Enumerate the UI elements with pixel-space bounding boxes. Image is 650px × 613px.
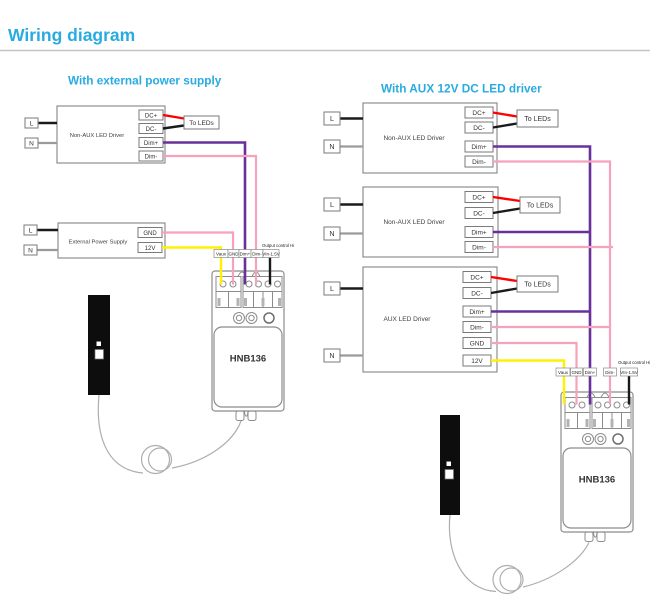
terminal-l-label: L (330, 284, 334, 293)
terminal-dc-plus-label: DC+ (145, 113, 158, 119)
sensor-cord (172, 421, 241, 468)
sensor-cord (449, 515, 496, 592)
header: Wiring diagram (0, 25, 650, 51)
right-aux-driver: AUX LED Driver L N DC+ DC- Dim+ Dim- GND… (324, 267, 497, 372)
wiring-diagram-canvas: Wiring diagram With external power suppl… (0, 0, 650, 613)
cord-coil (500, 568, 523, 591)
left-to-leds: To LEDs (184, 116, 219, 129)
page-title: Wiring diagram (8, 25, 135, 45)
sensor-cord (523, 543, 589, 588)
terminal-dim-minus-label: Dim- (470, 324, 484, 331)
pin-dim-minus: Dim- (605, 370, 615, 375)
terminal-dc-plus-label: DC+ (470, 274, 483, 281)
terminal-dim-plus-label: Dim+ (471, 144, 487, 151)
right-controller-model: HNB136 (579, 475, 615, 486)
terminal-gnd-label: GND (470, 340, 485, 347)
terminal-n-label: N (329, 142, 334, 151)
terminal-dim-plus-label: Dim+ (469, 309, 485, 316)
output-note: Output control Hi (262, 243, 294, 248)
driver-label: AUX LED Driver (384, 316, 432, 323)
terminal-dc-minus-label: DC- (473, 125, 485, 132)
terminal-l-label: L (330, 114, 334, 123)
terminal-l-label: L (29, 228, 33, 235)
pin-gnd: GND (229, 252, 240, 257)
wire-dc-plus (163, 115, 184, 119)
driver-label: Non-AUX LED Driver (383, 135, 445, 142)
wire-dim-minus (163, 156, 256, 285)
terminal-n-label: N (29, 141, 34, 148)
left-subtitle: With external power supply (68, 74, 222, 88)
sensor-cord (98, 395, 143, 473)
pin-dim-plus: Dim+ (585, 370, 596, 375)
wire-12v (491, 361, 564, 405)
terminal-gnd-label: GND (143, 231, 157, 237)
to-leds-label: To LEDs (524, 282, 551, 289)
right-driver-2: Non-AUX LED Driver L N DC+ DC- Dim+ Dim- (324, 187, 498, 257)
pin-vin: VIn-1.5V (262, 252, 280, 257)
terminal-dc-minus-label: DC- (146, 127, 157, 133)
terminal-12v-label: 12V (471, 358, 483, 365)
terminal-dim-minus-label: Dim- (472, 159, 486, 166)
terminal-dc-minus-label: DC- (471, 290, 483, 297)
terminal-12v-label: 12V (145, 246, 156, 252)
right-to-leds-1: To LEDs (517, 110, 558, 127)
pin-vaux: Vaux (558, 370, 569, 375)
terminal-l-label: L (330, 200, 334, 209)
driver-label: Non-AUX LED Driver (70, 133, 125, 139)
left-controller-device (212, 271, 284, 421)
terminal-dc-minus-label: DC- (473, 210, 485, 217)
terminal-dim-plus-label: Dim+ (144, 141, 159, 147)
output-note: Output control Hi (618, 360, 650, 365)
terminal-l-label: L (30, 121, 34, 128)
pin-vin: VIn-1.5V (620, 370, 638, 375)
pin-vaux: Vaux (216, 252, 227, 257)
right-diagram: With AUX 12V DC LED driver Non-AUX LED D… (324, 82, 650, 594)
pin-dim-minus: Dim- (252, 252, 262, 257)
terminal-n-label: N (329, 351, 334, 360)
left-diagram: With external power supply Non-AUX LED D… (24, 74, 294, 474)
terminal-dc-plus-label: DC+ (472, 194, 485, 201)
left-psu: External Power Supply L N GND 12V (24, 223, 165, 258)
sensor-window-large (445, 470, 454, 480)
right-subtitle: With AUX 12V DC LED driver (381, 82, 542, 96)
left-controller-pin-labels: Output control Hi Vaux GND Dim+ Dim- VIn… (214, 243, 294, 258)
left-driver: Non-AUX LED Driver L N DC+ DC- Dim+ Dim- (25, 106, 165, 163)
left-controller-model: HNB136 (230, 354, 266, 365)
sensor-window-large (95, 350, 104, 360)
right-to-leds-3: To LEDs (517, 276, 558, 292)
terminal-n-label: N (28, 248, 33, 255)
sensor-window-small (97, 342, 102, 347)
right-controller-pin-labels: Output control Hi Vaux GND Dim+ Dim- VIn… (556, 360, 650, 376)
to-leds-label: To LEDs (527, 203, 554, 210)
wire-dc-minus (163, 126, 184, 129)
pin-dim-plus: Dim+ (240, 252, 251, 257)
right-to-leds-2: To LEDs (520, 197, 560, 213)
right-driver-1: Non-AUX LED Driver L N DC+ DC- Dim+ Dim- (324, 103, 497, 173)
to-leds-label: To LEDs (189, 120, 214, 127)
terminal-dim-minus-label: Dim- (145, 154, 158, 160)
terminal-n-label: N (329, 229, 334, 238)
pin-gnd: GND (572, 370, 583, 375)
page: Wiring diagram With external power suppl… (0, 0, 650, 613)
terminal-dim-plus-label: Dim+ (471, 229, 487, 236)
driver-label: Non-AUX LED Driver (383, 219, 445, 226)
sensor-window-small (447, 462, 452, 467)
terminal-dc-plus-label: DC+ (472, 110, 485, 117)
cord-coil (149, 448, 172, 471)
psu-label: External Power Supply (69, 240, 128, 246)
terminal-dim-minus-label: Dim- (472, 244, 486, 251)
right-controller-device (561, 392, 633, 542)
to-leds-label: To LEDs (524, 116, 551, 123)
